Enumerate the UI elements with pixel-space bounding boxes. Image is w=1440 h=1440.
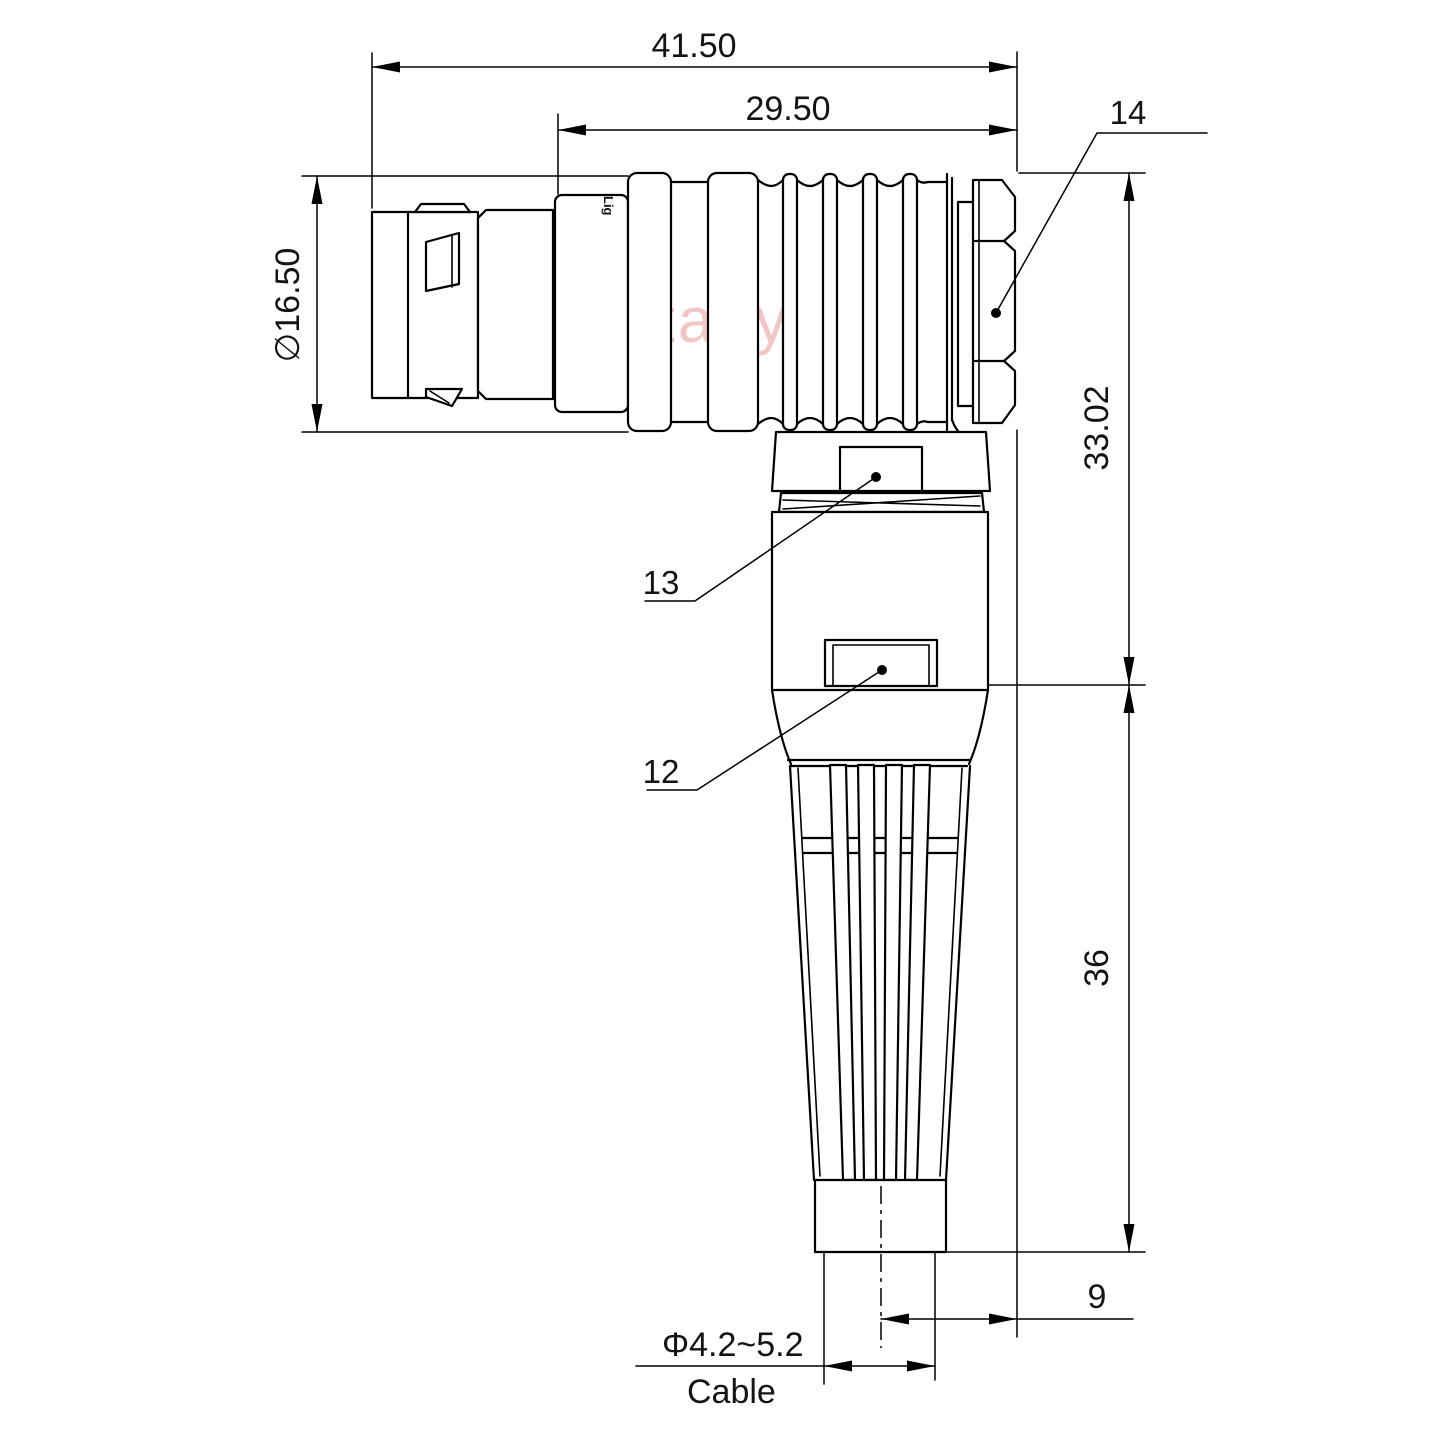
dim-nut-offset-value: 9 <box>1088 1278 1107 1316</box>
plug-key-bump <box>415 204 470 212</box>
housing-body <box>772 512 988 690</box>
dim-overall-length-value: 41.50 <box>651 27 736 65</box>
label-coupling-number: 13 <box>643 564 680 601</box>
logo-flange <box>555 195 628 412</box>
grip-rings <box>783 174 917 430</box>
cable-label: Cable <box>687 1373 776 1411</box>
coupling-collar <box>772 432 990 491</box>
strain-relief-boot <box>790 765 970 1180</box>
boot-rib-2 <box>858 765 876 1180</box>
label-housing-number: 12 <box>643 753 680 790</box>
boot-rib-4 <box>905 765 930 1180</box>
dim-lower-height-value: 36 <box>1078 949 1116 987</box>
dim-upper-height-value: 33.02 <box>1078 385 1116 470</box>
dim-shell-diameter-value: ∅16.50 <box>269 248 307 363</box>
plug-tip-outline <box>372 212 478 398</box>
dim-rear-length-value: 29.50 <box>745 90 830 128</box>
label-backnut: 14 <box>991 94 1207 318</box>
dim-upper-height: 33.02 <box>1019 173 1145 685</box>
boot-rib-1 <box>830 765 855 1180</box>
boot-rib-3 <box>884 765 902 1180</box>
shoulder-right <box>969 690 988 764</box>
shoulder-left <box>772 690 791 764</box>
connector-elbow <box>772 432 990 1384</box>
neck <box>958 202 973 406</box>
collar-1 <box>628 173 671 431</box>
technical-drawing-page: Lightany Lig <box>0 0 1440 1440</box>
dim-cable-diameter: Φ4.2~5.2 Cable <box>636 1326 935 1411</box>
body-logo-text: Lig <box>601 196 616 216</box>
plug-latch-window <box>426 233 459 291</box>
label-backnut-number: 14 <box>1110 94 1147 131</box>
connector-dimension-drawing: Lightany Lig <box>0 0 1440 1440</box>
dim-lower-height: 36 <box>946 685 1145 1252</box>
step-ring <box>478 210 553 399</box>
dim-cable-range-value: Φ4.2~5.2 <box>662 1326 804 1364</box>
collar-2 <box>708 173 758 431</box>
